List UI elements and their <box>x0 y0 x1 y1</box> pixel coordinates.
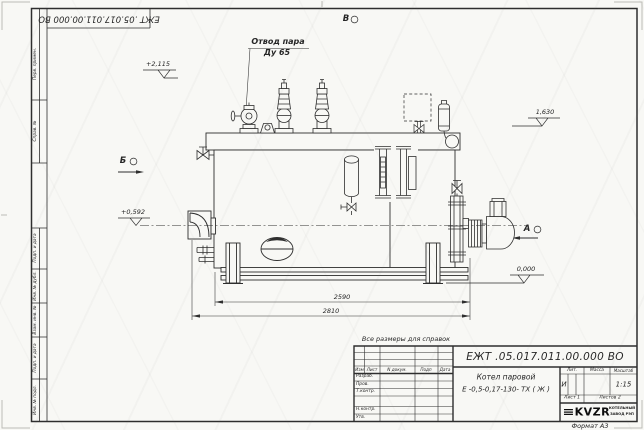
titleblock-hdr-lit: Лит. <box>567 368 577 372</box>
boiler-drawing <box>118 16 560 320</box>
view-arrow-b <box>118 170 144 174</box>
titleblock-row-nkontr: Н.контр. <box>356 408 376 412</box>
elevation-0000: 0,000 <box>517 265 536 272</box>
drawing-sheet: ЕЖТ .05.017.011.00.000 ВО Перв. примен. … <box>0 0 644 430</box>
titleblock-col-list: Лист <box>367 368 378 372</box>
elevation-0592: +0,592 <box>121 208 145 215</box>
margin-label-sprav-no: Справ. № <box>33 121 37 142</box>
steam-outlet-dn-label: Ду 65 <box>264 49 290 57</box>
dimension-2810: 2810 <box>323 307 340 314</box>
format-label: Формат А3 <box>571 422 608 429</box>
reference-note: Все размеры для справок <box>362 335 450 342</box>
titleblock-name-line2: Е -0,5-0,17-130- ТХ ( Ж ) <box>462 386 550 393</box>
titleblock-lit-value: И <box>561 381 566 388</box>
drain-stubs <box>197 246 214 264</box>
margin-label-inv-podl: Инв. № подл. <box>33 385 37 415</box>
kvzr-logo-text: KVZR <box>575 406 610 419</box>
view-arrow-a <box>512 236 538 240</box>
feed-pump-motor <box>463 199 515 250</box>
burner-elbow <box>188 211 216 239</box>
titleblock-hdr-scale: Масштаб <box>614 368 633 372</box>
titleblock-col-podp: Подп <box>420 368 431 372</box>
boiler-body <box>206 133 460 268</box>
manhole <box>261 238 293 261</box>
pressure-gauge-phantom <box>404 94 431 133</box>
titleblock-hdr-massa: Масса <box>590 368 604 372</box>
titleblock-col-data: Дата <box>440 368 451 372</box>
titleblock-scale-value: 1:15 <box>616 381 632 388</box>
steam-label-leader <box>246 49 309 111</box>
titleblock-sheets: Листов 2 <box>599 397 621 402</box>
margin-label-inv-dubl: Инв. № дубл. <box>33 271 37 300</box>
titleblock-row-tkontr: Т.контр. <box>356 390 375 394</box>
titleblock-sheet: Лист 1 <box>564 397 580 402</box>
dimension-2590: 2590 <box>334 293 351 300</box>
margin-label-perv-primen: Перв. примен. <box>33 48 37 80</box>
kvzr-logo-sub2: ЗАВОД РЭП <box>610 413 634 417</box>
titleblock-row-prov: Пров. <box>356 383 369 387</box>
steam-outlet-label: Отвод пара <box>251 38 304 46</box>
dimension-2810-line <box>192 314 470 317</box>
margin-label-podp-data-2: Подп. и дата <box>33 343 37 372</box>
view-letter-left: Б <box>120 157 126 166</box>
titleblock-row-utv: Утв. <box>356 416 365 420</box>
dimension-2590-line <box>215 300 470 303</box>
view-letter-right: А <box>524 225 531 234</box>
elevation-1630: 1,630 <box>536 109 555 116</box>
titleblock-doc-number: ЕЖТ .05.017.011.00.000 ВО <box>466 351 624 362</box>
elevation-2115: +2,115 <box>146 61 170 68</box>
lifting-lug <box>261 124 275 134</box>
safety-valve-1 <box>275 80 293 134</box>
steam-outlet-valve <box>231 103 258 134</box>
drawing-canvas <box>0 0 644 430</box>
kvzr-logo-sub1: КОТЕЛЬНЫЙ <box>609 407 635 411</box>
downcomer-channel <box>448 196 466 262</box>
titleblock-col-izm: Изм <box>355 368 364 372</box>
titleblock-name-line1: Котел паровой <box>477 373 536 381</box>
margin-label-vzam-inv: Взам. инв. № <box>33 305 37 334</box>
margin-label-podp-data-1: Подп. и дата <box>33 233 37 262</box>
titleblock-row-razrab: Разраб. <box>356 375 373 379</box>
view-letter-top: В <box>343 15 349 24</box>
kvzr-logo: ≡KVZR <box>564 407 610 418</box>
titleblock-col-ndoc: N докум. <box>387 368 406 372</box>
sight-glass-assembly <box>374 144 418 202</box>
kvzr-logo-bars-icon: ≡ <box>562 407 575 418</box>
safety-valve-2 <box>313 80 331 134</box>
top-doc-code: ЕЖТ .05.017.011.00.000 ВО <box>38 14 159 23</box>
